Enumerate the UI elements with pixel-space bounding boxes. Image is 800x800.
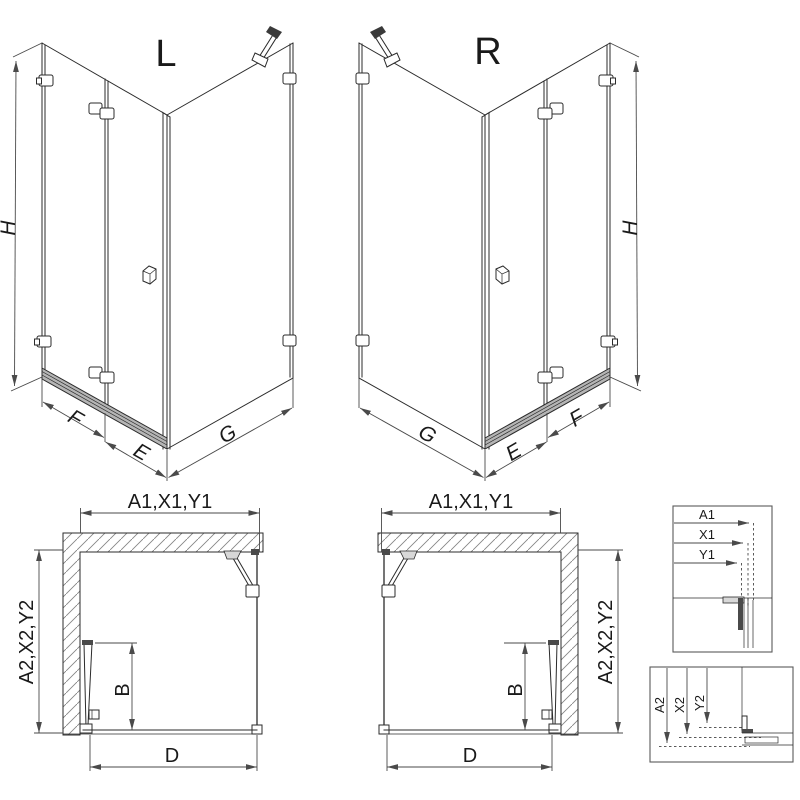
dim-label-g-right: G bbox=[414, 420, 440, 448]
plan-right-version: A1,X1,Y1 A2,X2,Y2 B D bbox=[378, 491, 623, 771]
dim-label-f-left: F bbox=[64, 405, 88, 432]
dim-label-d-left-plan: D bbox=[165, 745, 179, 767]
detail-depth-section: A2 X2 Y2 bbox=[650, 667, 793, 762]
dim-label-a1x1y1-left-plan: A1,X1,Y1 bbox=[128, 491, 213, 513]
view-r-3d: R H F E G bbox=[356, 26, 642, 481]
dim-label-e-left: E bbox=[129, 439, 153, 466]
label-view-l: L bbox=[155, 33, 176, 75]
detail-label-y1: Y1 bbox=[699, 547, 715, 562]
detail-label-x1: X1 bbox=[699, 527, 715, 542]
view-l-3d: L H F E G bbox=[0, 26, 296, 481]
dim-label-h-left: H bbox=[0, 220, 20, 236]
dim-label-b-right-plan: B bbox=[505, 683, 527, 696]
dim-label-f-right: F bbox=[565, 405, 589, 432]
dim-label-a2x2y2-right-plan: A2,X2,Y2 bbox=[595, 600, 617, 685]
dim-label-g-left: G bbox=[215, 420, 241, 448]
shower-enclosure-technical-drawing: L H F E G R H F E G A1,X1 bbox=[0, 0, 800, 800]
dim-label-a2x2y2-left-plan: A2,X2,Y2 bbox=[16, 600, 38, 685]
detail-label-x2: X2 bbox=[672, 697, 687, 713]
dim-label-b-left-plan: B bbox=[112, 683, 134, 696]
plan-left-version: A1,X1,Y1 A2,X2,Y2 B D bbox=[16, 491, 263, 771]
dim-label-a1x1y1-right-plan: A1,X1,Y1 bbox=[429, 491, 514, 513]
detail-label-y2: Y2 bbox=[692, 695, 707, 711]
detail-label-a1: A1 bbox=[699, 507, 715, 522]
dim-label-d-right-plan: D bbox=[463, 745, 477, 767]
dim-label-h-right: H bbox=[619, 220, 642, 236]
detail-label-a2: A2 bbox=[652, 697, 667, 713]
label-view-r: R bbox=[474, 31, 501, 73]
dim-label-e-right: E bbox=[502, 438, 526, 465]
detail-width-section: A1 X1 Y1 bbox=[673, 506, 772, 652]
